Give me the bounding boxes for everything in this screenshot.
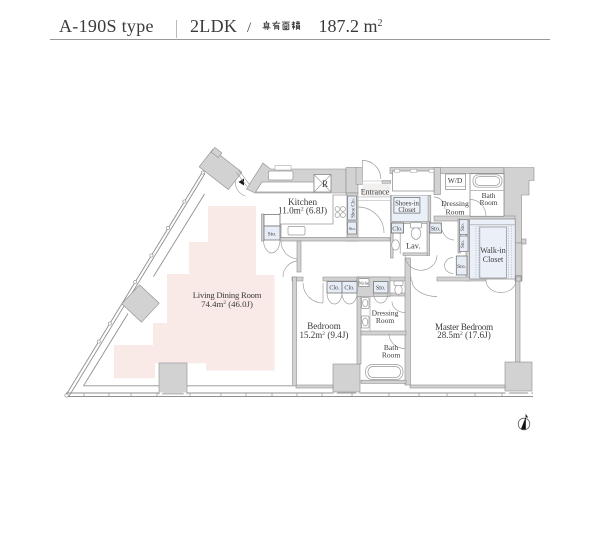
svg-text:Closet: Closet — [483, 255, 504, 264]
svg-text:Entrance: Entrance — [361, 188, 390, 197]
svg-text:Clo.: Clo. — [344, 286, 355, 292]
svg-text:Room: Room — [382, 350, 401, 359]
svg-text:R: R — [322, 179, 328, 189]
svg-text:187.2 m2: 187.2 m2 — [319, 16, 383, 36]
svg-text:Sto.: Sto. — [268, 232, 277, 238]
svg-text:Room: Room — [480, 198, 498, 207]
svg-text:15.2m2 (9.4J): 15.2m2 (9.4J) — [300, 330, 349, 340]
svg-text:Sto.: Sto. — [376, 286, 386, 292]
svg-text:Sto.: Sto. — [457, 264, 466, 270]
svg-text:Sto.: Sto. — [431, 226, 441, 232]
svg-text:Closet: Closet — [398, 207, 415, 214]
svg-text:28.5m2 (17.6J): 28.5m2 (17.6J) — [437, 330, 491, 340]
svg-text:74.4m2 (46.0J): 74.4m2 (46.0J) — [201, 299, 253, 309]
svg-text:Clo.: Clo. — [329, 286, 340, 292]
svg-text:Niche: Niche — [359, 280, 369, 285]
svg-text:Room: Room — [376, 316, 395, 325]
svg-text:Sto.: Sto. — [461, 223, 466, 231]
svg-text:Lav.: Lav. — [406, 242, 420, 251]
svg-text:Shoe Clo.: Shoe Clo. — [352, 198, 357, 218]
svg-text:A-190S type: A-190S type — [59, 16, 154, 36]
svg-text:Clo.: Clo. — [392, 226, 403, 232]
svg-text:Sto.: Sto. — [461, 240, 466, 248]
svg-text:11.0m2 (6.8J): 11.0m2 (6.8J) — [278, 206, 327, 216]
svg-text:Room: Room — [445, 208, 464, 217]
svg-text:Sto.: Sto. — [349, 226, 356, 231]
svg-text:Walk-in: Walk-in — [480, 246, 506, 255]
svg-text:W/D: W/D — [448, 176, 463, 185]
svg-text:2LDK: 2LDK — [190, 16, 237, 36]
svg-text:/: / — [247, 20, 252, 36]
